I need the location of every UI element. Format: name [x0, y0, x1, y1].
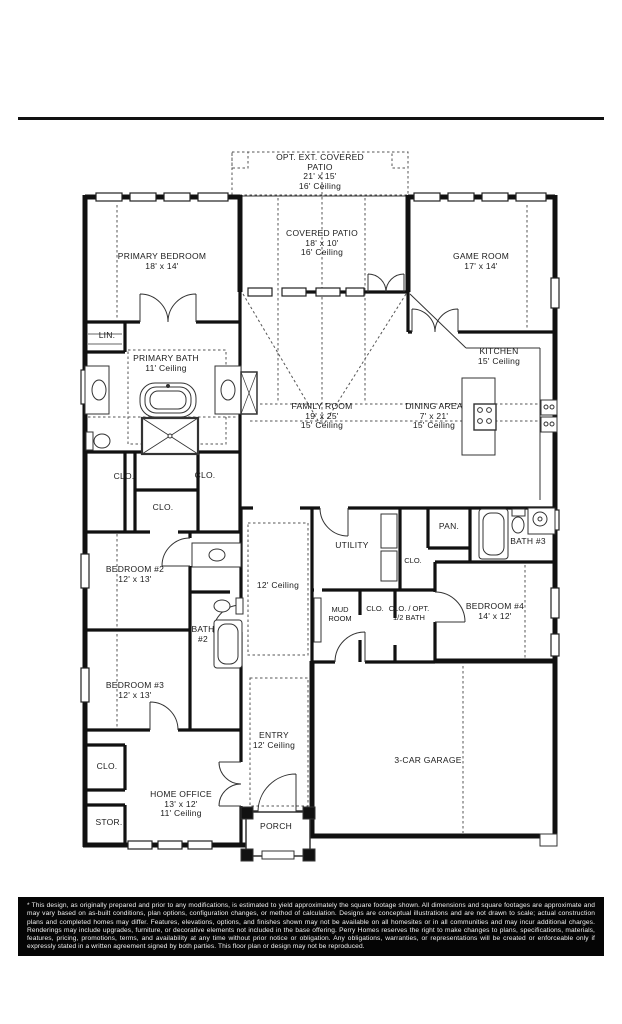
- room-label-utility: UTILITY: [335, 541, 368, 551]
- room-label-kitchen: KITCHEN 15' Ceiling: [478, 347, 520, 366]
- room-label-closet-2: CLO.: [195, 471, 216, 481]
- room-label-storage: STOR.: [95, 818, 122, 828]
- label-line: 11' Ceiling: [133, 364, 199, 374]
- garage-step: [540, 834, 557, 846]
- label-line: 12' x 13': [106, 691, 164, 701]
- label-line: 17' x 14': [453, 262, 509, 272]
- disclaimer-text: * This design, as originally prepared an…: [27, 902, 595, 952]
- room-label-mud-room: MUD ROOM: [328, 606, 351, 623]
- label-line: 15' Ceiling: [405, 421, 463, 431]
- label-line: ROOM: [328, 615, 351, 624]
- room-label-closet-6: CLO.: [97, 762, 118, 772]
- label-line: 12' Ceiling: [253, 741, 295, 751]
- primary-tub: [140, 383, 196, 417]
- room-label-bedroom-2: BEDROOM #2 12' x 13': [106, 565, 164, 584]
- room-label-home-office: HOME OFFICE 13' x 12' 11' Ceiling: [150, 790, 212, 819]
- label-line: 12' Ceiling: [257, 581, 299, 591]
- label-line: CLO.: [97, 762, 118, 772]
- label-line: 1/2 BATH: [389, 614, 429, 623]
- label-line: 15' Ceiling: [478, 357, 520, 367]
- label-line: BATH #3: [510, 537, 546, 547]
- label-line: CLO.: [404, 557, 422, 566]
- floor-plan-page: OPT. EXT. COVERED PATIO 21' x 15' 16' Ce…: [0, 0, 622, 1024]
- room-label-game-room: GAME ROOM 17' x 14': [453, 252, 509, 271]
- room-label-linen: LIN.: [99, 331, 116, 341]
- room-label-closet-1: CLO.: [114, 472, 135, 482]
- label-line: 14' x 12': [466, 612, 524, 622]
- label-line: CLO.: [195, 471, 216, 481]
- room-label-bath-3: BATH #3: [510, 537, 546, 547]
- label-line: CLO.: [366, 605, 384, 614]
- label-line: #2: [191, 635, 214, 645]
- primary-vanity-right: [215, 366, 241, 414]
- label-line: UTILITY: [335, 541, 368, 551]
- label-line: LIN.: [99, 331, 116, 341]
- room-label-family-room: FAMILY ROOM 19' x 25' 15' Ceiling: [291, 402, 352, 431]
- label-line: CLO.: [153, 503, 174, 513]
- room-label-primary-bedroom: PRIMARY BEDROOM 18' x 14': [118, 252, 206, 271]
- porch-structure: [241, 807, 315, 861]
- room-label-entry: ENTRY 12' Ceiling: [253, 731, 295, 750]
- floor-plan: OPT. EXT. COVERED PATIO 21' x 15' 16' Ce…: [0, 0, 622, 1024]
- room-label-opt-ext-covered-patio: OPT. EXT. COVERED PATIO 21' x 15' 16' Ce…: [276, 153, 364, 191]
- label-line: 16' Ceiling: [286, 248, 358, 258]
- label-line: STOR.: [95, 818, 122, 828]
- room-label-dining-area: DINING AREA 7' x 21' 15' Ceiling: [405, 402, 463, 431]
- label-line: 11' Ceiling: [150, 809, 212, 819]
- room-label-primary-bath: PRIMARY BATH 11' Ceiling: [133, 354, 199, 373]
- primary-toilet: [86, 432, 110, 450]
- label-line: PAN.: [439, 522, 459, 532]
- room-label-closet-4: CLO.: [404, 557, 422, 566]
- room-label-closet-5: CLO.: [366, 605, 384, 614]
- kitchen-island: [462, 378, 496, 455]
- utility-appliances: [381, 514, 397, 581]
- label-line: 3-CAR GARAGE: [394, 756, 461, 766]
- room-label-bedroom-4: BEDROOM #4 14' x 12': [466, 602, 524, 621]
- primary-shower: [142, 418, 198, 454]
- disclaimer-box: * This design, as originally prepared an…: [18, 897, 604, 956]
- label-line: 15' Ceiling: [291, 421, 352, 431]
- bath3-fixtures: [479, 508, 555, 559]
- room-label-covered-patio: COVERED PATIO 18' x 10' 16' Ceiling: [286, 229, 358, 258]
- label-hall-ceiling: 12' Ceiling: [257, 581, 299, 591]
- label-line: 16' Ceiling: [276, 182, 364, 192]
- room-label-pantry: PAN.: [439, 522, 459, 532]
- room-label-porch: PORCH: [260, 822, 292, 832]
- label-line: CLO.: [114, 472, 135, 482]
- primary-vanity-left: [85, 366, 109, 414]
- label-line: PORCH: [260, 822, 292, 832]
- room-label-closet-opt-half-bath: CLO. / OPT. 1/2 BATH: [389, 605, 429, 622]
- mud-bench: [314, 598, 321, 642]
- room-label-bath-2: BATH #2: [191, 625, 214, 644]
- label-line: 12' x 13': [106, 575, 164, 585]
- room-label-closet-3: CLO.: [153, 503, 174, 513]
- room-label-garage: 3-CAR GARAGE: [394, 756, 461, 766]
- room-label-bedroom-3: BEDROOM #3 12' x 13': [106, 681, 164, 700]
- art-niche: [241, 372, 257, 414]
- label-line: 18' x 14': [118, 262, 206, 272]
